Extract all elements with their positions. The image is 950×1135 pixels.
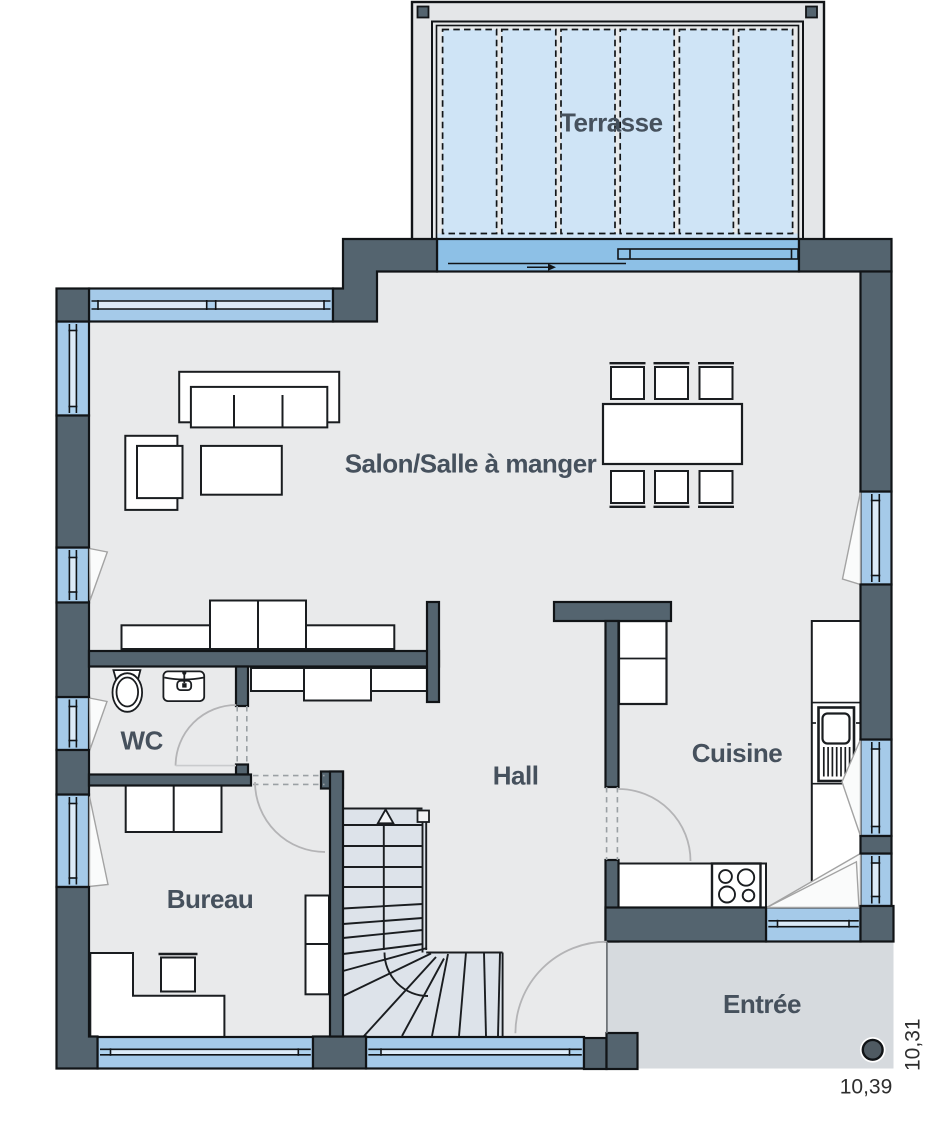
svg-text:Hall: Hall [493, 761, 539, 791]
svg-text:Bureau: Bureau [167, 884, 254, 914]
svg-text:Salon/Salle à manger: Salon/Salle à manger [345, 449, 597, 479]
svg-text:10,39: 10,39 [840, 1076, 893, 1099]
svg-text:Entrée: Entrée [723, 989, 801, 1019]
svg-text:Terrasse: Terrasse [560, 108, 663, 138]
svg-text:10,31: 10,31 [902, 1018, 925, 1071]
svg-text:WC: WC [121, 726, 164, 756]
svg-text:Cuisine: Cuisine [692, 738, 782, 768]
